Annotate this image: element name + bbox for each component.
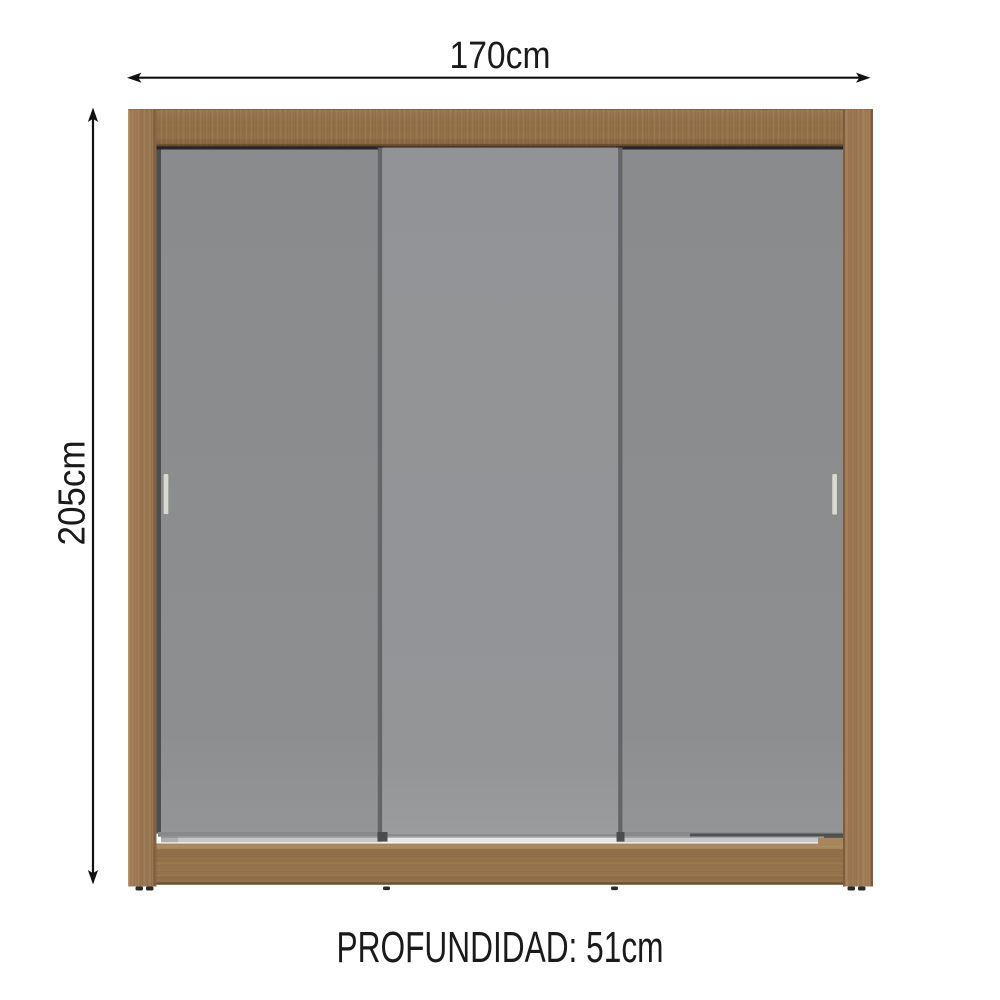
svg-text:205cm: 205cm — [52, 441, 94, 546]
svg-text:170cm: 170cm — [450, 35, 551, 77]
svg-text:PROFUNDIDAD: 51cm: PROFUNDIDAD: 51cm — [337, 923, 664, 972]
